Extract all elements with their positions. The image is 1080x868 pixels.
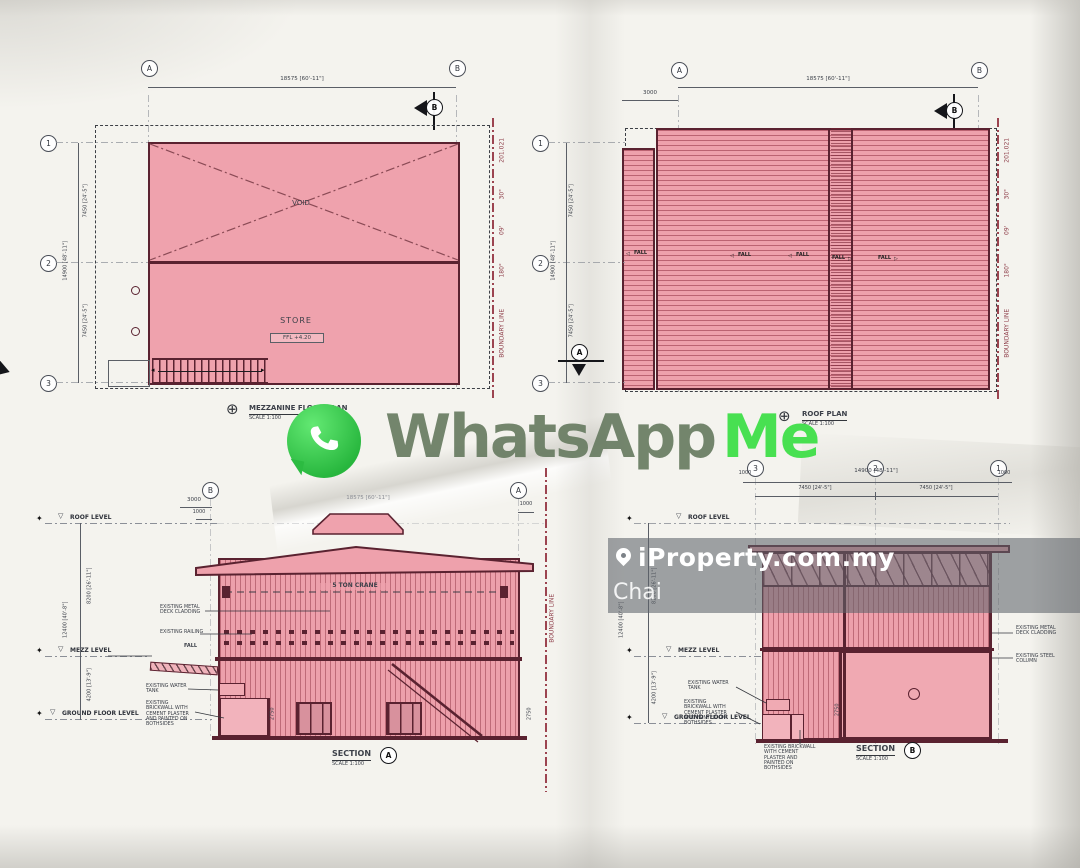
annotation-railing: EXISTING RAILING [160,630,208,635]
roof-surface [656,128,990,390]
boundary-minutes: 09' [1005,210,1012,250]
whatsapp-me-word: Me [722,400,818,474]
grid-bubble-3: 3 [40,375,57,392]
stair-stringer [388,670,478,742]
dim-line [78,143,79,383]
leader-line [188,689,218,690]
paper-crease [0,0,1080,16]
drawing-title: SECTION [856,745,895,756]
dim-text-top: 18575 [60'-11"] [763,76,893,82]
blueprint-photo: A B 18575 [60'-11"] B VOID STORE FFL +4.… [0,0,1080,868]
whatsapp-watermark: WhatsApp Me [0,395,1080,490]
annotation-cladding: EXISTING METAL DECK CLADDING [1016,626,1070,637]
main-roof [196,547,533,575]
boundary-degrees: 180° [1005,250,1012,290]
whatsapp-word: WhatsApp [385,400,715,474]
iproperty-agent-name: Chai [613,580,662,605]
boundary-line [997,118,999,400]
section-cut-flag: A [558,342,606,382]
pin-hole [620,552,627,559]
drawing-title: SECTION [332,750,371,761]
column-marker [131,327,140,336]
dim-text: 14900 [48'-11"] [63,221,69,301]
grid-line [56,262,148,263]
crane-hook [222,586,230,598]
section-title-flag: A [380,747,397,764]
fall-arrow-icon: ◁ [730,254,734,260]
fall-arrow-icon: ◁ [626,252,630,258]
fall-arrow-icon: ▷ [848,257,852,263]
annotation-brickwall: EXISTING BRICKWALL WITH CEMENT PLASTER A… [146,701,196,727]
grid-bubble-a: A [671,62,688,79]
fall-arrow-icon: ◁ [788,254,792,260]
grid-line [548,262,625,263]
section-flag-letter: A [571,344,588,361]
room-label-store: STORE [266,317,326,326]
annotation-water-tank: EXISTING WATER TANK [146,684,190,695]
mezz-divider-wall [148,261,460,264]
iproperty-watermark: iProperty.com.my Chai [608,538,1080,613]
dim-text: 7450 [24'-5"] [83,166,89,236]
boundary-distance: 201.021 [1005,120,1012,180]
dim-text-top: 18575 [60'-11"] [232,76,372,82]
leader-line [736,712,760,724]
fall-label: FALL [796,253,809,259]
dim-line [678,87,978,88]
fall-label: FALL [832,256,845,262]
annotation-brickwall: EXISTING BRICKWALL WITH CEMENT PLASTER A… [684,700,734,726]
jack-roof [313,514,403,534]
section-flag-letter: B [426,99,443,116]
boundary-degrees: 180° [500,250,507,290]
iproperty-brand: iProperty.com.my [638,543,895,572]
dim-line [148,87,456,88]
paper-crease [0,0,300,110]
room-label-void: VOID [276,200,326,208]
grid-bubble-2: 2 [532,255,549,272]
dim-line [622,100,678,101]
boundary-distance: 201.021 [500,120,507,180]
column-marker [131,286,140,295]
fall-arrow-icon: ▷ [894,257,898,263]
annotation-brickwall-bottom: EXISTING BRICKWALL WITH CEMENT PLASTER A… [764,745,816,771]
dim-text: 14900 [48'-11"] [551,221,557,301]
drawing-scale: SCALE 1:100 [332,762,364,768]
leader-line [195,712,224,718]
boundary-line [545,468,547,792]
grid-line [548,142,625,143]
whatsapp-logo-icon [287,404,361,478]
fall-label: FALL [878,256,891,262]
dim-canopy-text: 3000 [630,90,670,96]
roof-canopy-strip [622,148,655,390]
boundary-minutes: 09' [500,210,507,250]
crane-hook [500,586,508,598]
stair-direction-line [158,371,262,372]
dim-text: 7450 [24'-5"] [569,166,575,236]
drawing-scale: SCALE 1:100 [856,757,888,763]
grid-line [56,382,148,383]
grid-bubble-b: B [971,62,988,79]
boundary-label: BOUNDARY LINE [550,578,557,658]
phone-icon [304,420,344,460]
annotation-water-tank: EXISTING WATER TANK [688,681,734,692]
section-a-linework [40,460,560,790]
grid-line [548,382,625,383]
boundary-line [492,118,494,398]
fall-label: FALL [738,253,751,259]
annotation-steel-column: EXISTING STEEL COLUMN [1016,654,1070,665]
leader-line [736,687,766,703]
stair-stringer [392,664,482,736]
grid-bubble-1: 1 [40,135,57,152]
section-flag-letter: B [946,102,963,119]
grid-line [56,142,148,143]
grid-bubble-b: B [449,60,466,77]
boundary-seconds: 30" [500,174,507,214]
ffl-label: FFL +4.20 [270,333,324,343]
paper-crease [0,825,1080,868]
location-pin-icon [613,545,634,566]
stair-arrow-icon: ◂ [151,367,155,375]
annotation-fall: FALL [184,644,197,650]
grid-bubble-3: 3 [532,375,549,392]
section-title-flag: B [904,742,921,759]
stair-arrow-icon: ▸ [261,367,265,375]
boundary-label: BOUNDARY LINE [500,293,507,373]
annotation-cladding: EXISTING METAL DECK CLADDING [160,605,208,616]
boundary-label: BOUNDARY LINE [1005,293,1012,373]
section-arrow-icon [572,364,586,376]
boundary-seconds: 30" [1005,174,1012,214]
grid-bubble-a: A [141,60,158,77]
section-arrow-icon [0,360,12,379]
fall-label: FALL [634,251,647,257]
grid-bubble-2: 2 [40,255,57,272]
dim-text: 7450 [24'-5"] [83,286,89,356]
whatsapp-logo-tail [288,459,305,476]
grid-bubble-1: 1 [532,135,549,152]
